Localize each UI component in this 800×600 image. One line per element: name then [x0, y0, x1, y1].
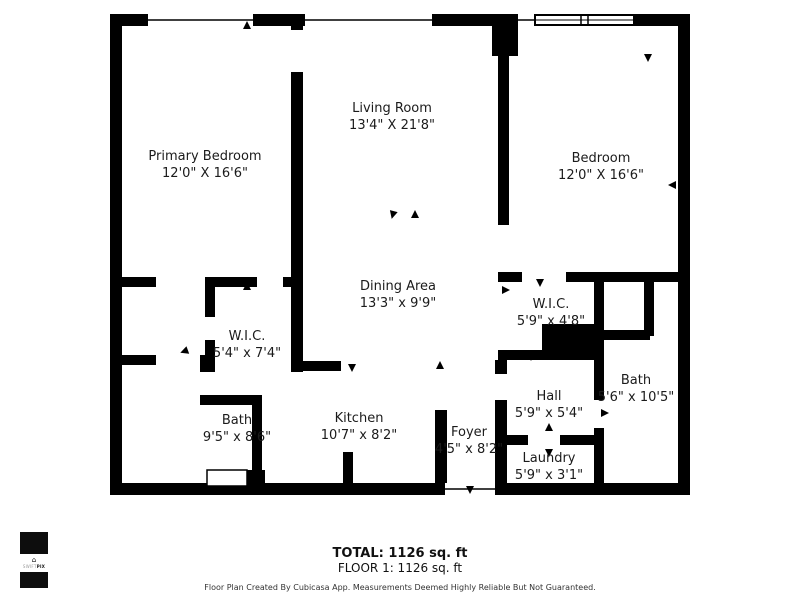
room-name: Living Room — [352, 101, 432, 116]
room-dims: 5'9" x 5'4" — [515, 405, 583, 422]
room-name: Laundry — [523, 451, 576, 466]
room-name: W.I.C. — [229, 329, 266, 344]
room-label-bedroom: Bedroom 12'0" X 16'6" — [558, 150, 644, 184]
room-name: Bath — [621, 373, 651, 388]
house-icon: ⌂ — [32, 557, 36, 564]
brand-logo: ⌂ SWIFTPIX — [20, 532, 48, 588]
room-label-laundry: Laundry 5'9" x 3'1" — [515, 450, 583, 484]
logo-block-top — [20, 532, 48, 554]
room-dims: 13'4" X 21'8" — [349, 117, 435, 134]
room-label-kitchen: Kitchen 10'7" x 8'2" — [321, 410, 397, 444]
room-label-primary-bedroom: Primary Bedroom 12'0" X 16'6" — [148, 148, 261, 182]
logo-band: ⌂ SWIFTPIX — [20, 554, 48, 572]
room-label-bath-right: Bath 5'6" x 10'5" — [598, 372, 674, 406]
room-label-foyer: Foyer 4'5" x 8'2" — [435, 424, 503, 458]
room-label-bath-left: Bath 9'5" x 8'6" — [203, 412, 271, 446]
room-label-wic-left: W.I.C. 5'4" x 7'4" — [213, 328, 281, 362]
room-name: Primary Bedroom — [148, 149, 261, 164]
total-area-text: TOTAL: 1126 sq. ft — [0, 546, 800, 561]
room-name: Dining Area — [360, 279, 436, 294]
room-dims: 13'3" x 9'9" — [360, 295, 436, 312]
walls — [110, 14, 690, 495]
room-name: W.I.C. — [533, 297, 570, 312]
room-name: Kitchen — [335, 411, 384, 426]
footer: TOTAL: 1126 sq. ft FLOOR 1: 1126 sq. ft … — [0, 546, 800, 592]
room-dims: 5'9" x 4'8" — [517, 313, 585, 330]
room-dims: 12'0" X 16'6" — [148, 165, 261, 182]
room-dims: 4'5" x 8'2" — [435, 441, 503, 458]
window-symbol — [535, 15, 634, 25]
vanity-fixture — [207, 470, 247, 486]
disclaimer-text: Floor Plan Created By Cubicasa App. Meas… — [0, 583, 800, 592]
logo-brand-prefix: SWIFT — [23, 564, 37, 569]
room-dims: 10'7" x 8'2" — [321, 427, 397, 444]
room-dims: 5'4" x 7'4" — [213, 345, 281, 362]
room-dims: 12'0" X 16'6" — [558, 167, 644, 184]
room-name: Hall — [537, 389, 562, 404]
room-label-living-room: Living Room 13'4" X 21'8" — [349, 100, 435, 134]
room-dims: 9'5" x 8'6" — [203, 429, 271, 446]
logo-brand-text: SWIFTPIX — [23, 564, 45, 569]
room-name: Bedroom — [572, 151, 631, 166]
room-label-hall: Hall 5'9" x 5'4" — [515, 388, 583, 422]
room-name: Foyer — [451, 425, 487, 440]
floor-area-text: FLOOR 1: 1126 sq. ft — [0, 561, 800, 575]
room-label-dining-area: Dining Area 13'3" x 9'9" — [360, 278, 436, 312]
logo-brand-suffix: PIX — [37, 564, 45, 569]
room-dims: 5'9" x 3'1" — [515, 467, 583, 484]
room-name: Bath — [222, 413, 252, 428]
logo-block-bottom — [20, 572, 48, 588]
floorplan-page: Primary Bedroom 12'0" X 16'6" Living Roo… — [0, 0, 800, 600]
room-dims: 5'6" x 10'5" — [598, 389, 674, 406]
room-label-wic-right: W.I.C. 5'9" x 4'8" — [517, 296, 585, 330]
